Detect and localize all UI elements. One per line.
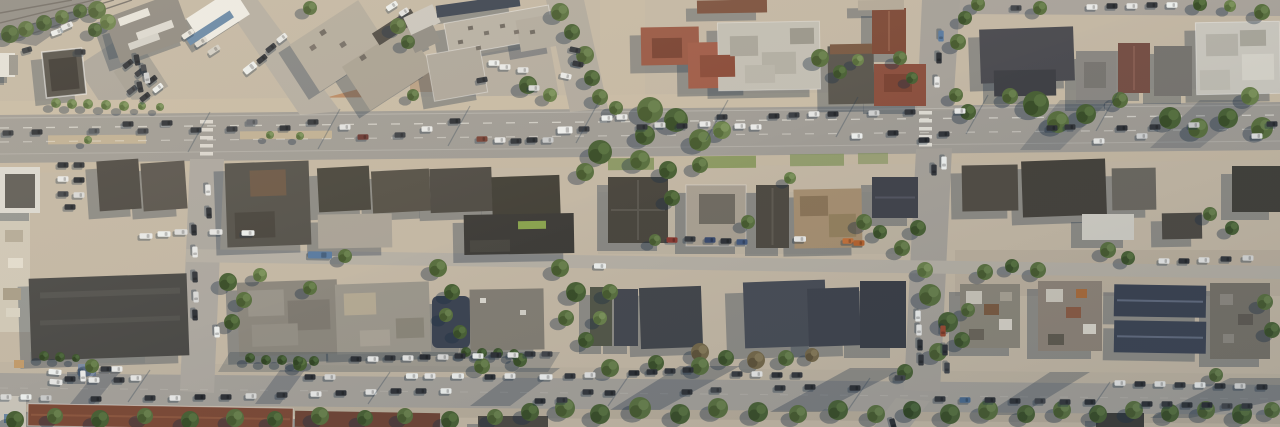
atmosphere-layer	[0, 0, 1280, 427]
satellite-image	[0, 0, 1280, 427]
aerial-imagery-viewport	[0, 0, 1280, 427]
